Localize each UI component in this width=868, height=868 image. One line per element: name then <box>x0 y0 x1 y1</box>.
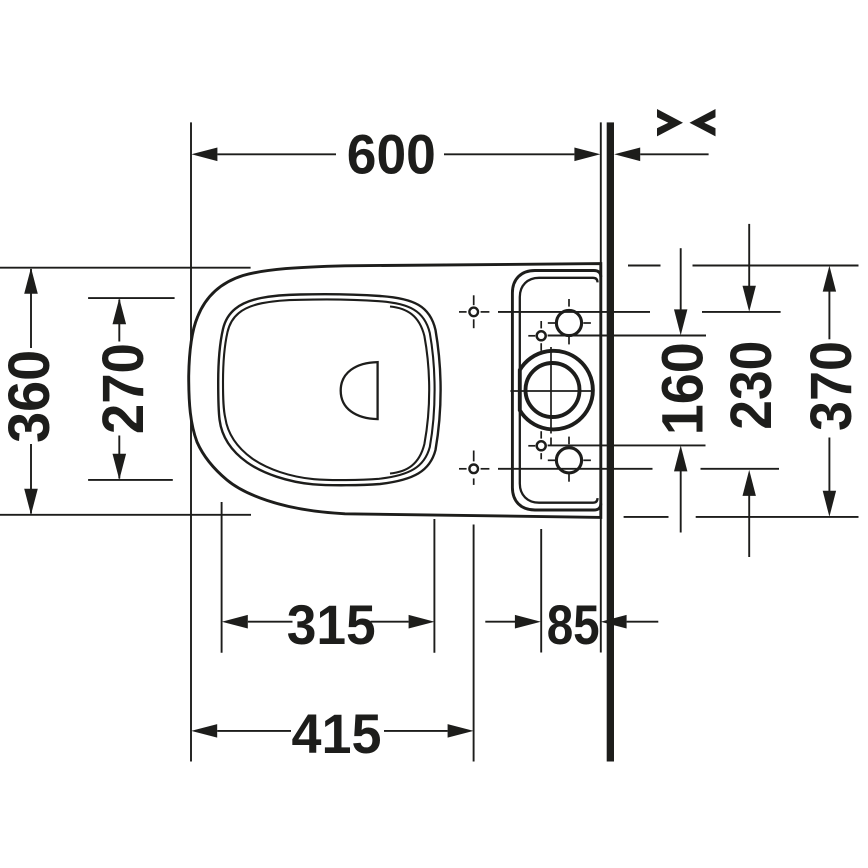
svg-text:230: 230 <box>719 341 784 430</box>
svg-text:370: 370 <box>799 341 864 431</box>
svg-text:270: 270 <box>91 343 156 434</box>
svg-text:415: 415 <box>292 702 382 765</box>
svg-text:600: 600 <box>347 122 436 185</box>
svg-text:360: 360 <box>0 350 62 443</box>
svg-text:160: 160 <box>651 342 716 435</box>
svg-text:85: 85 <box>547 593 600 656</box>
svg-text:315: 315 <box>287 593 376 656</box>
